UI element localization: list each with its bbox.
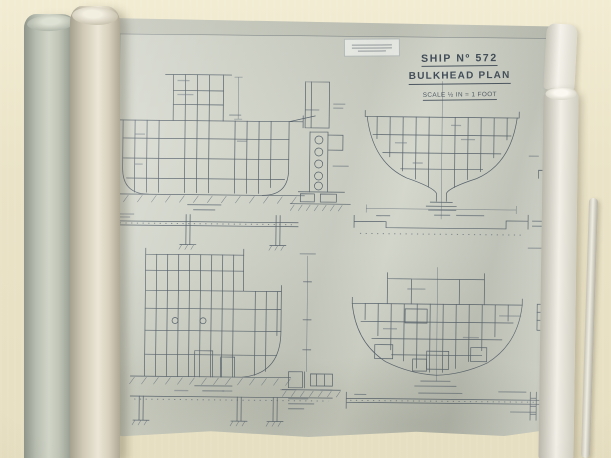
center-girder-detail-drawing xyxy=(290,82,351,212)
centerline-detail-drawing xyxy=(282,254,342,410)
drawing-sheet: SHIP Nº 572 BULKHEAD PLAN SCALE ½ IN = 1… xyxy=(74,17,567,442)
drawing-scale: SCALE ½ IN = 1 FOOT xyxy=(423,92,497,101)
stamp-text-line xyxy=(358,50,386,51)
rolled-plan-right-main xyxy=(538,88,578,458)
stamp-text-line xyxy=(352,44,392,45)
rolled-plan-left-cream xyxy=(70,6,120,458)
title-block: SHIP Nº 572 BULKHEAD PLAN SCALE ½ IN = 1… xyxy=(393,49,526,102)
ship-number-title: SHIP Nº 572 xyxy=(421,53,498,67)
bulkhead-section-top-left-drawing xyxy=(106,74,319,211)
plan-strip-right xyxy=(354,213,550,235)
bulkhead-section-bottom-left-drawing xyxy=(129,248,291,392)
bulkhead-vee-section-drawing xyxy=(364,80,519,220)
plan-strip-left xyxy=(110,214,298,251)
approval-stamp xyxy=(344,38,400,56)
photo-of-rolled-bulkhead-plan: SHIP Nº 572 BULKHEAD PLAN SCALE ½ IN = 1… xyxy=(0,0,611,458)
girder-strip-bottom-right xyxy=(346,390,542,412)
bulkhead-bowl-section-drawing xyxy=(351,266,522,387)
drawing-title: BULKHEAD PLAN xyxy=(409,71,511,85)
thin-rolled-strip-right xyxy=(581,198,598,458)
rolled-plan-right-upper-segment xyxy=(543,23,577,91)
stamp-text-line xyxy=(352,47,392,48)
